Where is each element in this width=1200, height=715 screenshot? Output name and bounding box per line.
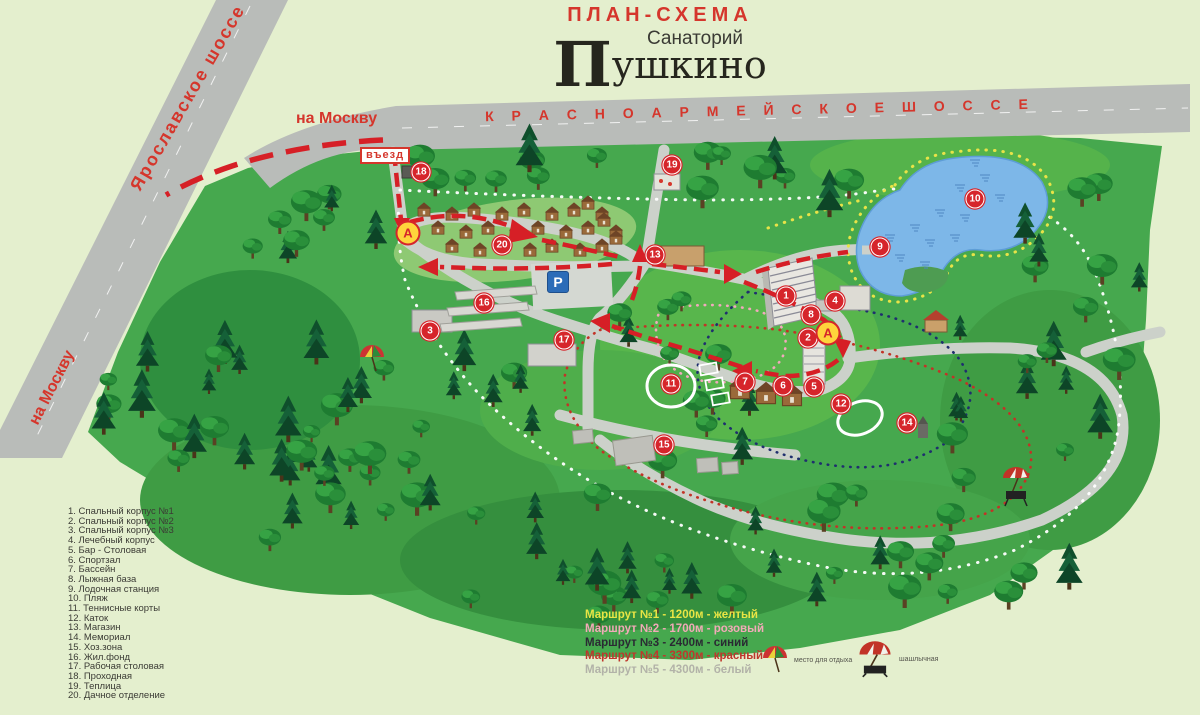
building-13 bbox=[658, 246, 704, 266]
map-marker-6: 6 bbox=[774, 377, 793, 396]
map-marker-4: 4 bbox=[826, 292, 845, 311]
bbq-label: шашлычная bbox=[899, 656, 938, 663]
bus-stop-2: А bbox=[816, 321, 841, 346]
rest-area-label: место для отдыха bbox=[794, 657, 852, 664]
map-marker-17: 17 bbox=[555, 331, 574, 350]
map-marker-14: 14 bbox=[898, 414, 917, 433]
map-marker-11: 11 bbox=[662, 375, 681, 394]
umbrella-icon bbox=[760, 645, 790, 675]
legend-bbq: шашлычная bbox=[855, 640, 938, 678]
map-marker-12: 12 bbox=[832, 395, 851, 414]
map-marker-15: 15 bbox=[655, 436, 674, 455]
map-marker-5: 5 bbox=[805, 378, 824, 397]
route-legend-item: Маршрут №1 - 1200м - желтый bbox=[585, 609, 764, 623]
plan-scheme-page: ПЛАН-СХЕМА Санаторий Пушкино К Р А С Н О… bbox=[0, 0, 1200, 715]
map-marker-8: 8 bbox=[802, 306, 821, 325]
building-4 bbox=[840, 286, 870, 310]
route-legend-item: Маршрут №2 - 1700м - розовый bbox=[585, 623, 764, 637]
building-19 bbox=[654, 174, 680, 190]
legend-item: 20. Дачное отделение bbox=[68, 691, 174, 701]
route-legend-item: Маршрут №4 - 3300м - красный bbox=[585, 650, 764, 664]
map-marker-9: 9 bbox=[871, 238, 890, 257]
map-marker-10: 10 bbox=[966, 190, 985, 209]
parking-sign: Р bbox=[547, 271, 569, 293]
map-marker-1: 1 bbox=[777, 287, 796, 306]
route-legend: Маршрут №1 - 1200м - желтыйМаршрут №2 - … bbox=[585, 609, 764, 678]
map-marker-19: 19 bbox=[663, 156, 682, 175]
map-marker-3: 3 bbox=[421, 322, 440, 341]
legend-list: 1. Спальный корпус №12. Спальный корпус … bbox=[68, 507, 174, 701]
legend-rest-area: место для отдыха bbox=[760, 645, 852, 675]
route-legend-item: Маршрут №5 - 4300м - белый bbox=[585, 664, 764, 678]
map-marker-18: 18 bbox=[412, 163, 431, 182]
to-moscow-top-label: на Москву bbox=[296, 110, 377, 128]
map-marker-7: 7 bbox=[736, 373, 755, 392]
bbq-icon bbox=[855, 640, 895, 678]
map-marker-16: 16 bbox=[475, 294, 494, 313]
entrance-label: въезд bbox=[360, 147, 410, 164]
map-marker-13: 13 bbox=[646, 246, 665, 265]
bus-stop-1: А bbox=[396, 221, 421, 246]
route-legend-item: Маршрут №3 - 2400м - синий bbox=[585, 637, 764, 651]
map-marker-20: 20 bbox=[493, 236, 512, 255]
